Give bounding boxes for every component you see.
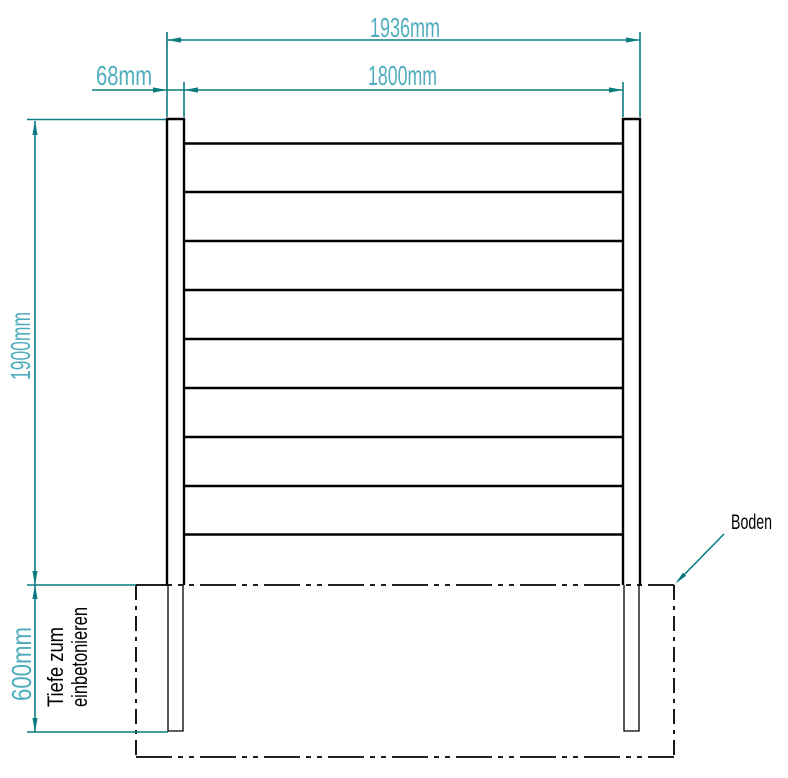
dimension-labels: 1936mm 1800mm 68mm 1900mm 600mm Tiefe zu… xyxy=(5,12,772,707)
dim-label-post-width: 68mm xyxy=(96,60,152,91)
arrowhead-right xyxy=(153,87,167,92)
arrowhead-left xyxy=(184,87,198,92)
dim-label-panel-width: 1800mm xyxy=(368,60,437,91)
ground-and-foundation xyxy=(136,585,674,757)
arrowhead-left xyxy=(167,37,181,42)
arrowhead-right xyxy=(626,37,640,42)
depth-note-line2: einbetonieren xyxy=(67,607,92,707)
dim-label-height: 1900mm xyxy=(5,312,36,380)
dimension-lines xyxy=(27,32,724,732)
arrowhead-up xyxy=(32,121,37,135)
ground-label: Boden xyxy=(731,511,772,534)
arrowhead-up xyxy=(32,585,37,599)
arrowhead-down xyxy=(32,571,37,585)
fence-structure xyxy=(167,119,640,731)
arrowhead-down xyxy=(32,718,37,732)
arrowhead-right xyxy=(609,87,623,92)
fence-boards xyxy=(184,144,623,535)
depth-note-line1: Tiefe zum xyxy=(43,627,68,707)
left-post-underground xyxy=(168,585,183,731)
dim-label-total-width: 1936mm xyxy=(370,12,440,43)
fence-technical-drawing: 1936mm 1800mm 68mm 1900mm 600mm Tiefe zu… xyxy=(0,0,788,778)
left-post xyxy=(167,119,184,585)
right-post-underground xyxy=(624,585,639,731)
dim-label-embed-depth: 600mm xyxy=(6,627,37,701)
right-post xyxy=(623,119,640,585)
ground-leader-line xyxy=(678,534,724,581)
drawing-canvas: 1936mm 1800mm 68mm 1900mm 600mm Tiefe zu… xyxy=(0,0,788,778)
